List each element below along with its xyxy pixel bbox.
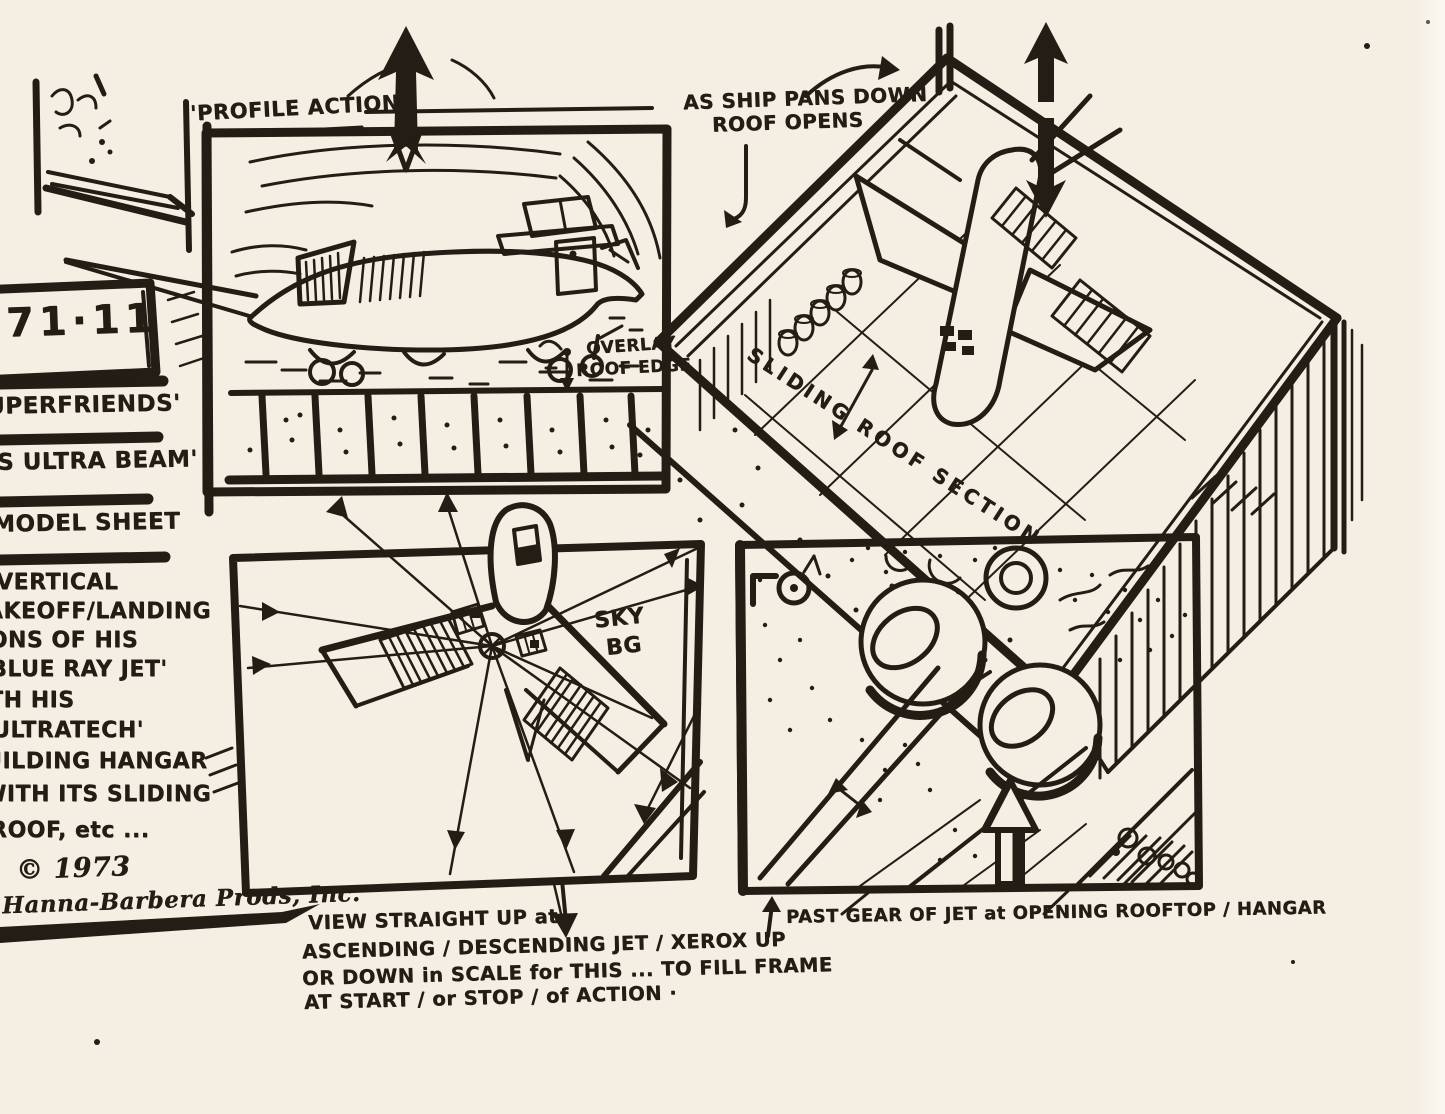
storyboard-page: 'PROFILE ACTION AS SHIP PANS DOWN ROOF O… <box>0 0 1445 1114</box>
margin-desc-line: TAKEOFF/LANDING <box>0 599 211 624</box>
panel3-group <box>233 492 704 938</box>
pan-down-arrow-icon <box>1024 22 1068 218</box>
margin-title-line: MODEL SHEET <box>0 508 181 537</box>
fence-roof-edge <box>229 389 665 480</box>
margin-desc-line: ULTRATECH' <box>0 718 144 743</box>
margin-desc-line: IONS OF HIS <box>0 628 138 653</box>
margin-desc-line: TH HIS <box>0 688 75 713</box>
roof-edge-band <box>604 704 704 878</box>
margin-desc-line: VERTICAL <box>0 570 118 595</box>
panel4-group <box>739 476 1274 936</box>
margin-desc-line: UILDING HANGAR <box>0 749 208 774</box>
margin-desc-line: WITH ITS SLIDING <box>0 782 211 807</box>
sky-bg-label-line2: BG <box>605 632 643 661</box>
cylinder-row <box>779 269 861 355</box>
margin-desc-line: BLUE RAY JET' <box>0 657 167 682</box>
copyright-year: © 1973 <box>15 851 131 886</box>
bent-arrow-icon <box>724 146 746 228</box>
margin-title-line: IS ULTRA BEAM' <box>0 446 198 476</box>
jet-profile-drawing <box>250 197 642 385</box>
margin-title-line: UPERFRIENDS' <box>0 390 181 419</box>
production-code: 71·11 <box>5 295 158 346</box>
sky-bg-label-line1: SKY <box>593 603 646 633</box>
margin-desc-line: ROOF, etc ... <box>0 818 150 843</box>
